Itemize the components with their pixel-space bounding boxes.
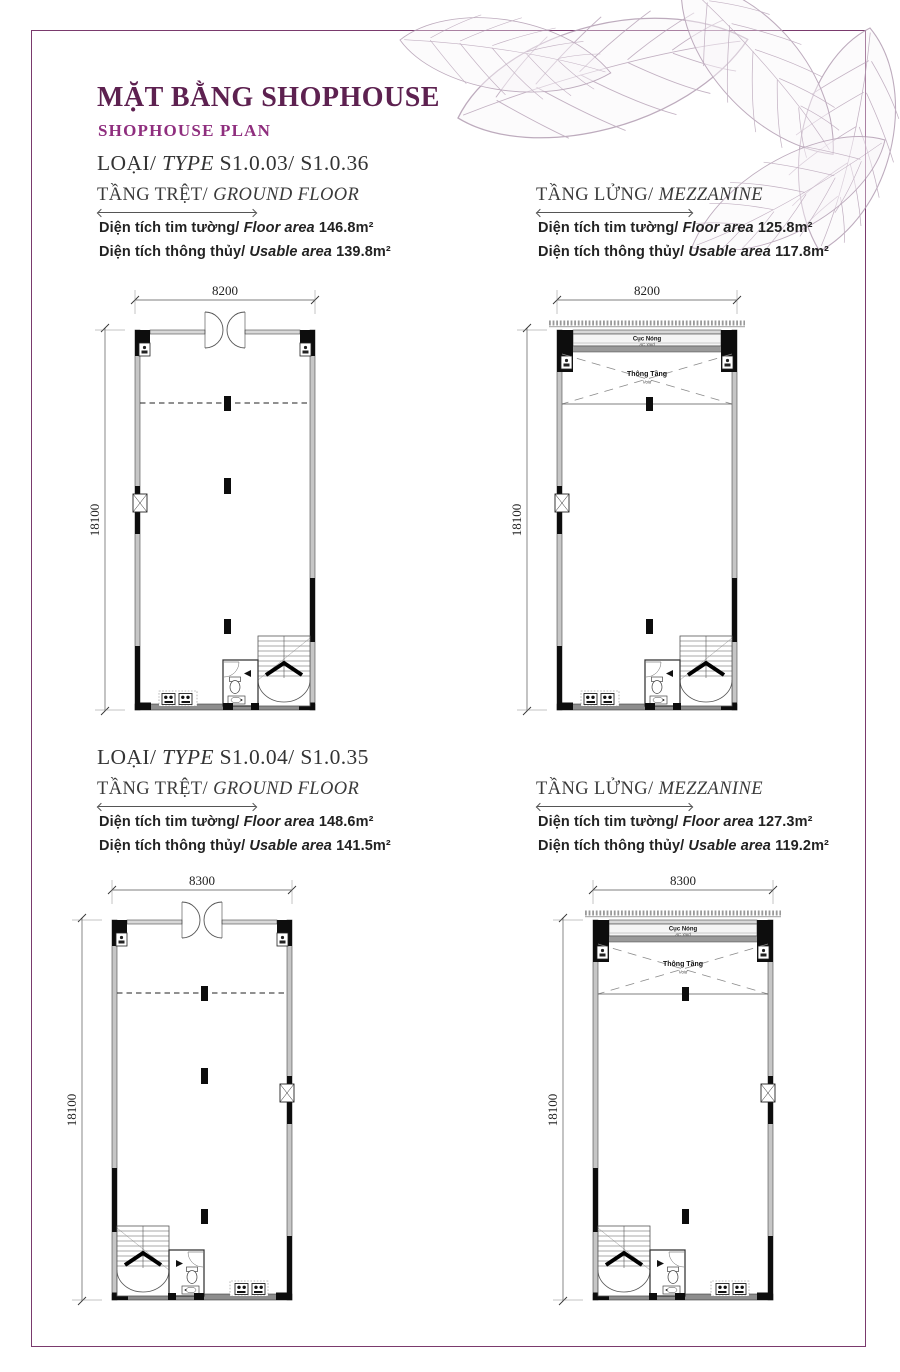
type-code: S1.0.03/ S1.0.36 — [220, 151, 369, 175]
floor-label-en: MEZZANINE — [659, 779, 763, 799]
area-row: Diện tích thông thủy/ Usable area 117.8m… — [538, 244, 829, 260]
svg-text:Void: Void — [643, 380, 652, 385]
plan-drawing: 830018100Cục NóngAC YardThông TầngVoid — [545, 873, 781, 1305]
svg-text:18100: 18100 — [87, 504, 102, 537]
floor-heading-mezzanine-1: TẦNG LỬNG/ MEZZANINE — [536, 185, 763, 206]
floor-label-vi: TẦNG TRỆT/ — [97, 185, 208, 205]
type-label-vi: LOẠI/ — [97, 745, 156, 769]
floor-heading-ground-2: TẦNG TRỆT/ GROUND FLOOR — [97, 779, 359, 800]
floorplan-s104-ground: 830018100 — [52, 862, 312, 1310]
type-label-en: TYPE — [162, 151, 214, 175]
area-row: Diện tích tim tường/ Floor area 125.8m² — [538, 220, 813, 236]
svg-text:18100: 18100 — [545, 1094, 560, 1127]
svg-text:Void: Void — [679, 970, 688, 975]
floor-heading-mezzanine-2: TẦNG LỬNG/ MEZZANINE — [536, 779, 763, 800]
floor-label-vi: TẦNG TRỆT/ — [97, 779, 208, 799]
svg-text:8300: 8300 — [189, 873, 215, 888]
svg-text:18100: 18100 — [64, 1094, 79, 1127]
type-code: S1.0.04/ S1.0.35 — [220, 745, 369, 769]
heading-underline-arrow — [537, 806, 692, 807]
floor-label-en: GROUND FLOOR — [213, 185, 359, 205]
area-row: Diện tích thông thủy/ Usable area 139.8m… — [99, 244, 391, 260]
floor-label-vi: TẦNG LỬNG/ — [536, 779, 654, 799]
plan-drawing: 830018100 — [64, 873, 296, 1305]
floorplan-s103-mezzanine-container: 820018100Cục NóngAC YardThông TầngVoid — [497, 272, 757, 720]
floorplan-s104-mezzanine-container: 830018100Cục NóngAC YardThông TầngVoid — [533, 862, 793, 1310]
floorplan-s104-mezzanine: 830018100Cục NóngAC YardThông TầngVoid — [533, 862, 793, 1310]
area-row: Diện tích thông thủy/ Usable area 119.2m… — [538, 838, 829, 854]
type-label-en: TYPE — [162, 745, 214, 769]
svg-text:8200: 8200 — [212, 283, 238, 298]
plan-interior — [112, 1076, 294, 1300]
brochure-page: { "page": { "title": "MẶT BẰNG SHOPHOUSE… — [0, 0, 900, 1372]
type-label-vi: LOẠI/ — [97, 151, 156, 175]
type-heading-2: LOẠI/ TYPE S1.0.04/ S1.0.35 — [97, 745, 369, 770]
area-row: Diện tích thông thủy/ Usable area 141.5m… — [99, 838, 391, 854]
type-heading-1: LOẠI/ TYPE S1.0.03/ S1.0.36 — [97, 151, 369, 176]
floorplan-s104-ground-container: 830018100 — [52, 862, 312, 1310]
area-row: Diện tích tim tường/ Floor area 148.6m² — [99, 814, 374, 830]
heading-underline-arrow — [537, 212, 692, 213]
plan-interior — [593, 1076, 775, 1300]
svg-text:8300: 8300 — [670, 873, 696, 888]
floorplan-s103-ground-container: 820018100 — [75, 272, 335, 720]
floorplan-s103-mezzanine: 820018100Cục NóngAC YardThông TầngVoid — [497, 272, 757, 720]
page-title: MẶT BẰNG SHOPHOUSE — [97, 82, 440, 114]
plan-interior — [133, 486, 315, 710]
area-row: Diện tích tim tường/ Floor area 146.8m² — [99, 220, 374, 236]
floor-heading-ground-1: TẦNG TRỆT/ GROUND FLOOR — [97, 185, 359, 206]
svg-text:Thông Tầng: Thông Tầng — [663, 959, 703, 968]
floorplan-s103-ground: 820018100 — [75, 272, 335, 720]
floor-label-en: GROUND FLOOR — [213, 779, 359, 799]
plan-interior — [555, 486, 737, 710]
svg-text:18100: 18100 — [509, 504, 524, 537]
svg-text:Thông Tầng: Thông Tầng — [627, 369, 667, 378]
floor-label-vi: TẦNG LỬNG/ — [536, 185, 654, 205]
heading-underline-arrow — [98, 212, 256, 213]
floor-label-en: MEZZANINE — [659, 185, 763, 205]
heading-underline-arrow — [98, 806, 256, 807]
page-subtitle: SHOPHOUSE PLAN — [98, 121, 271, 141]
svg-text:8200: 8200 — [634, 283, 660, 298]
area-row: Diện tích tim tường/ Floor area 127.3m² — [538, 814, 813, 830]
